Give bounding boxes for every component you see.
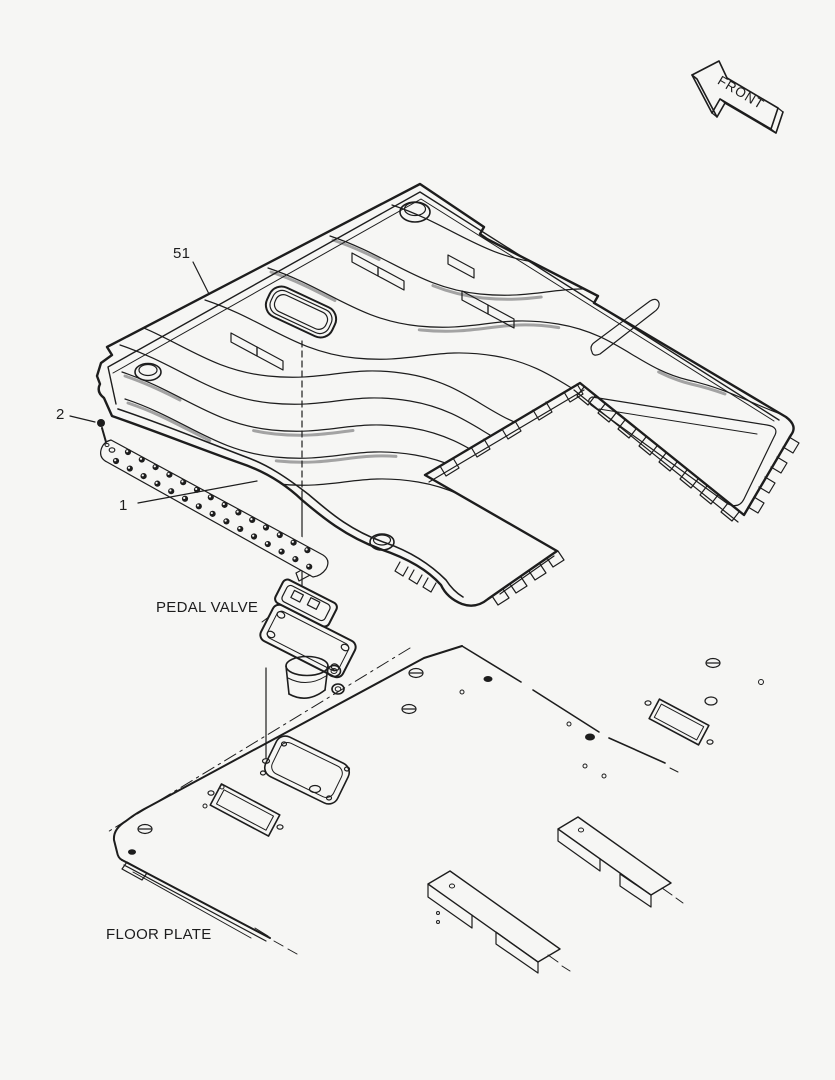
parts-diagram-drawing <box>0 0 835 1080</box>
floor-plate-drawing <box>106 646 764 973</box>
callout-label-1: 1 <box>119 497 128 514</box>
channel-stiffener <box>558 817 683 907</box>
caption-pedal-valve: PEDAL VALVE <box>156 599 258 616</box>
pedal-valve-drawing <box>258 578 358 698</box>
cutout-screws <box>261 742 350 800</box>
channel-stiffener <box>428 871 570 973</box>
parts-diagram-page: 51 2 1 PEDAL VALVE FLOOR PLATE FRONT <box>0 0 835 1080</box>
floor-mat-51-drawing <box>97 184 835 606</box>
caption-floor-plate: FLOOR PLATE <box>106 926 212 943</box>
callout-label-2: 2 <box>56 406 65 423</box>
callout-label-51: 51 <box>173 245 190 262</box>
plate-slotted-holes <box>138 659 720 834</box>
